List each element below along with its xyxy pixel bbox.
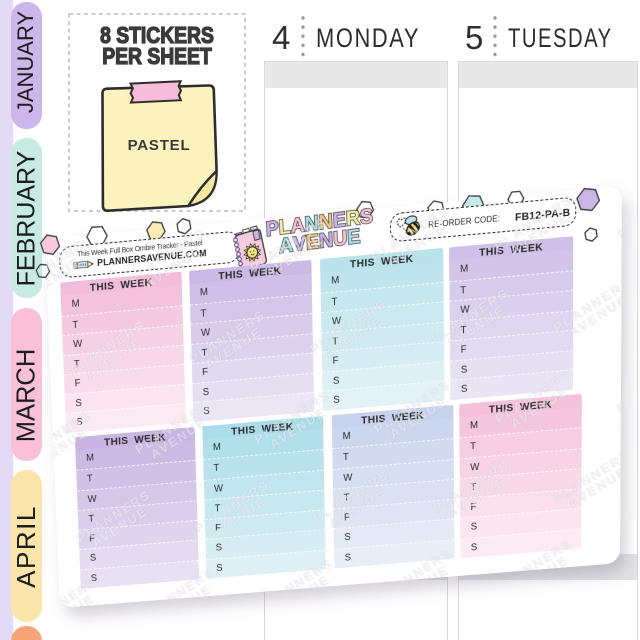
svg-text:PASTEL: PASTEL <box>128 137 191 154</box>
